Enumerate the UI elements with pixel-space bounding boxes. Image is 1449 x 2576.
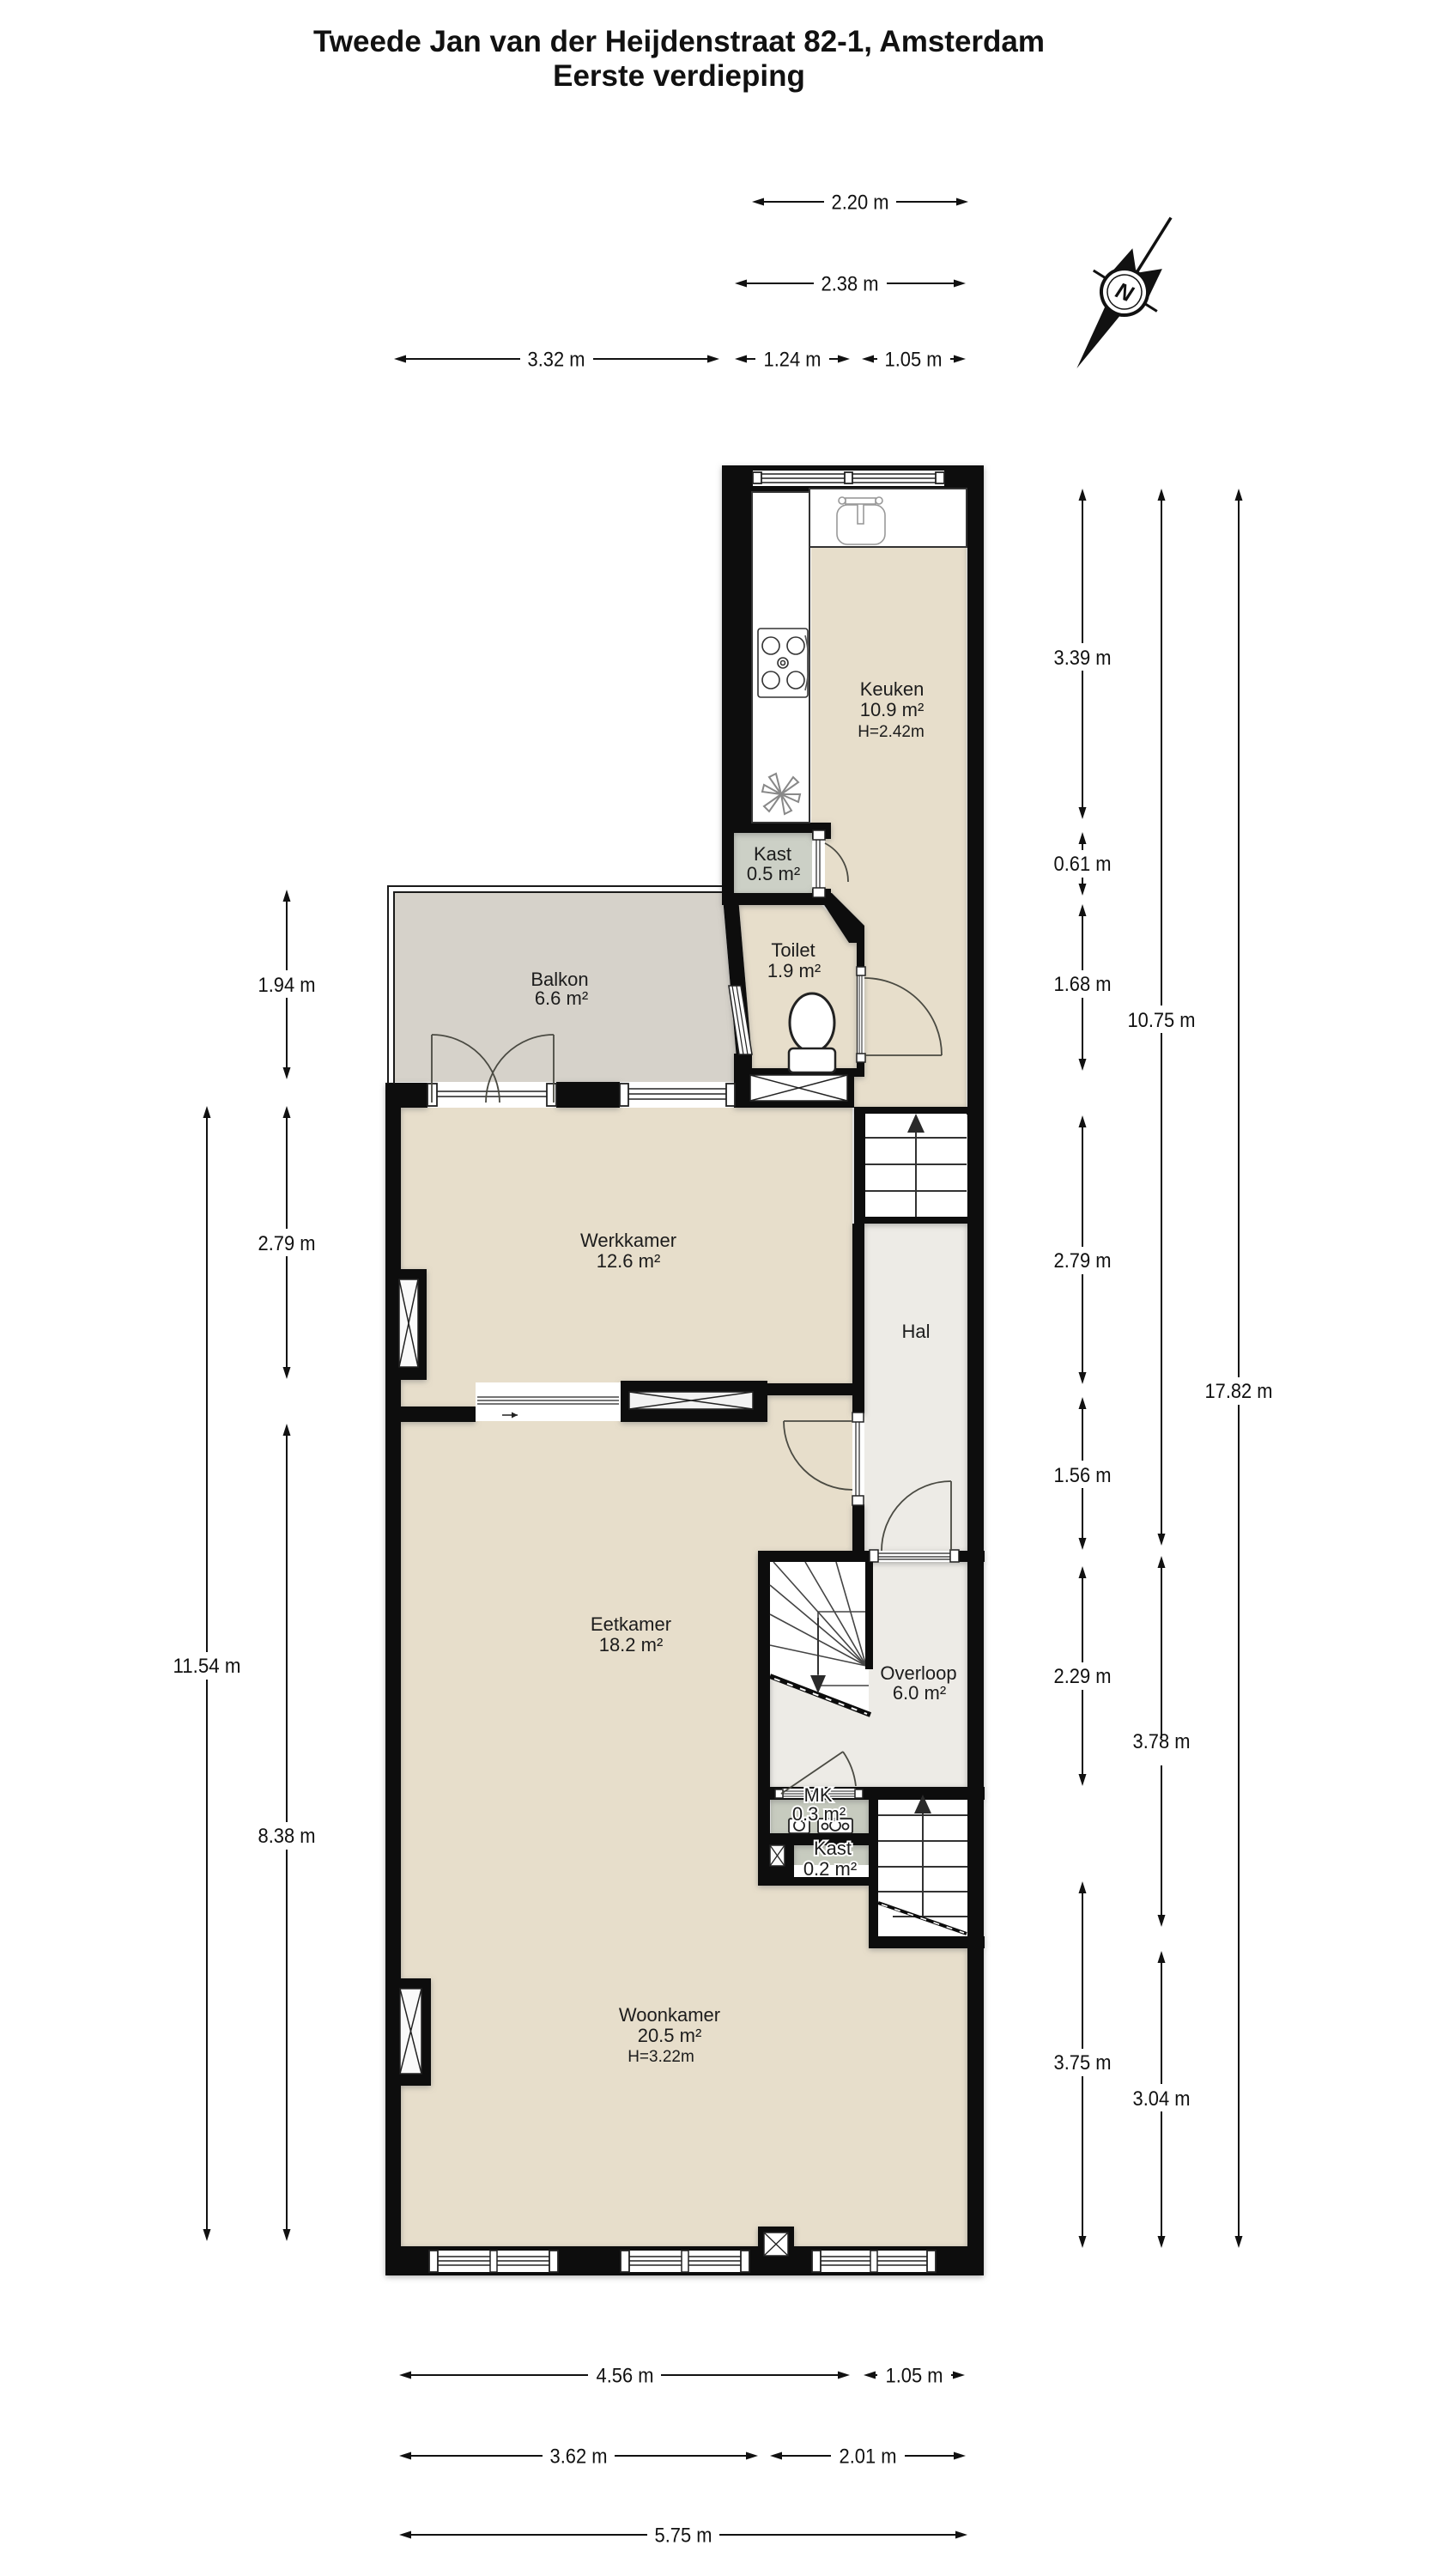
svg-text:2.29 m: 2.29 m — [1054, 1665, 1112, 1688]
svg-text:3.62 m: 3.62 m — [550, 2445, 608, 2469]
svg-text:0.3 m²: 0.3 m² — [792, 1803, 846, 1825]
svg-text:8.38 m: 8.38 m — [258, 1825, 316, 1848]
svg-text:Overloop: Overloop — [880, 1662, 956, 1684]
svg-text:Kast: Kast — [754, 843, 791, 865]
svg-text:1.56 m: 1.56 m — [1054, 1464, 1112, 1487]
svg-text:20.5 m²: 20.5 m² — [638, 2025, 702, 2046]
svg-text:Eerste verdieping: Eerste verdieping — [553, 59, 805, 93]
svg-text:3.75 m: 3.75 m — [1054, 2051, 1112, 2075]
svg-text:Keuken: Keuken — [860, 678, 925, 700]
svg-text:3.78 m: 3.78 m — [1133, 1730, 1191, 1753]
svg-text:0.61 m: 0.61 m — [1054, 853, 1112, 876]
svg-text:Tweede Jan van der Heijdenstra: Tweede Jan van der Heijdenstraat 82-1, A… — [313, 25, 1045, 58]
svg-text:3.39 m: 3.39 m — [1054, 647, 1112, 670]
svg-text:6.6 m²: 6.6 m² — [535, 987, 588, 1009]
svg-text:3.32 m: 3.32 m — [528, 349, 585, 372]
svg-text:5.75 m: 5.75 m — [655, 2524, 712, 2548]
svg-text:1.05 m: 1.05 m — [886, 2365, 943, 2388]
svg-text:1.24 m: 1.24 m — [764, 349, 822, 372]
svg-text:1.05 m: 1.05 m — [885, 349, 943, 372]
svg-text:6.0 m²: 6.0 m² — [893, 1682, 946, 1704]
svg-text:4.56 m: 4.56 m — [597, 2365, 654, 2388]
svg-text:2.38 m: 2.38 m — [822, 273, 879, 296]
svg-text:18.2 m²: 18.2 m² — [599, 1634, 664, 1656]
svg-text:H=2.42m: H=2.42m — [858, 723, 925, 741]
svg-text:2.79 m: 2.79 m — [1054, 1249, 1112, 1273]
svg-text:10.75 m: 10.75 m — [1128, 1009, 1196, 1032]
svg-text:Eetkamer: Eetkamer — [591, 1613, 671, 1635]
svg-text:Woonkamer: Woonkamer — [619, 2004, 720, 2026]
svg-text:17.82 m: 17.82 m — [1205, 1380, 1273, 1403]
svg-text:2.79 m: 2.79 m — [258, 1232, 316, 1255]
svg-text:1.94 m: 1.94 m — [258, 974, 316, 997]
svg-text:2.20 m: 2.20 m — [832, 191, 889, 215]
svg-text:Kast: Kast — [814, 1838, 852, 1859]
svg-text:1.68 m: 1.68 m — [1054, 973, 1112, 996]
svg-text:0.5 m²: 0.5 m² — [747, 863, 800, 884]
svg-text:12.6 m²: 12.6 m² — [597, 1250, 661, 1272]
svg-text:Hal: Hal — [901, 1321, 930, 1342]
svg-text:H=3.22m: H=3.22m — [627, 2048, 694, 2066]
svg-text:Werkkamer: Werkkamer — [580, 1230, 676, 1251]
svg-text:1.9 m²: 1.9 m² — [767, 960, 821, 981]
svg-text:2.01 m: 2.01 m — [840, 2445, 897, 2469]
svg-text:10.9 m²: 10.9 m² — [860, 699, 925, 720]
svg-text:0.2 m²: 0.2 m² — [803, 1858, 857, 1880]
svg-text:Toilet: Toilet — [771, 939, 815, 961]
svg-text:11.54 m: 11.54 m — [173, 1655, 241, 1678]
svg-text:3.04 m: 3.04 m — [1133, 2087, 1191, 2111]
